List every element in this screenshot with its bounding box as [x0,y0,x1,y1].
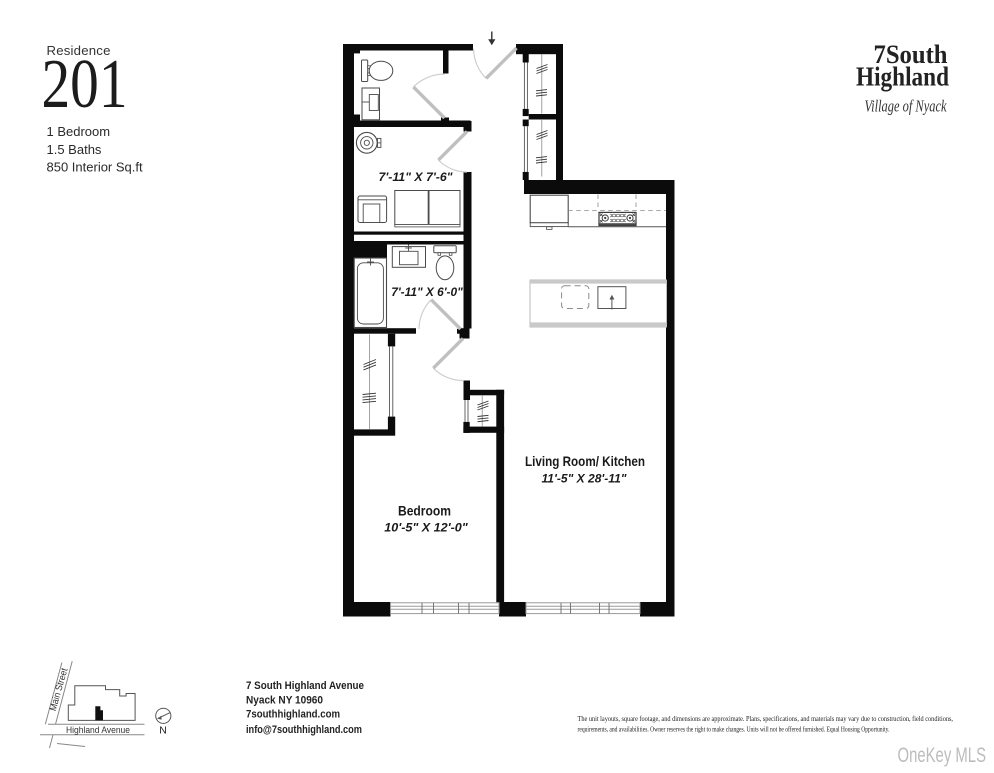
svg-text:Village of Nyack: Village of Nyack [865,97,948,116]
svg-text:Nyack NY 10960: Nyack NY 10960 [246,695,323,707]
svg-text:N: N [159,725,167,737]
svg-text:OneKey MLS: OneKey MLS [898,743,987,767]
svg-text:requirements, and availabiliti: requirements, and availabilities. Owner … [578,725,890,734]
svg-text:10'-5" X 12'-0": 10'-5" X 12'-0" [384,521,468,535]
svg-text:201: 201 [42,46,128,123]
svg-text:1 Bedroom: 1 Bedroom [47,124,111,139]
svg-text:Bedroom: Bedroom [398,504,451,519]
svg-text:1.5 Baths: 1.5 Baths [47,142,102,157]
svg-text:7 South Highland Avenue: 7 South Highland Avenue [246,680,364,692]
svg-text:Highland: Highland [856,62,949,92]
svg-text:7'-11" X 7'-6": 7'-11" X 7'-6" [379,170,453,184]
svg-text:The unit layouts, square foota: The unit layouts, square footage, and di… [578,714,954,723]
svg-text:Highland Avenue: Highland Avenue [66,725,130,736]
svg-text:Living Room/ Kitchen: Living Room/ Kitchen [525,454,645,469]
svg-text:7southhighland.com: 7southhighland.com [246,709,340,721]
svg-text:info@7southhighland.com: info@7southhighland.com [246,724,362,736]
svg-text:11'-5" X 28'-11": 11'-5" X 28'-11" [542,472,627,486]
svg-text:850 Interior Sq.ft: 850 Interior Sq.ft [47,160,143,175]
svg-text:7'-11" X 6'-0": 7'-11" X 6'-0" [391,285,463,299]
